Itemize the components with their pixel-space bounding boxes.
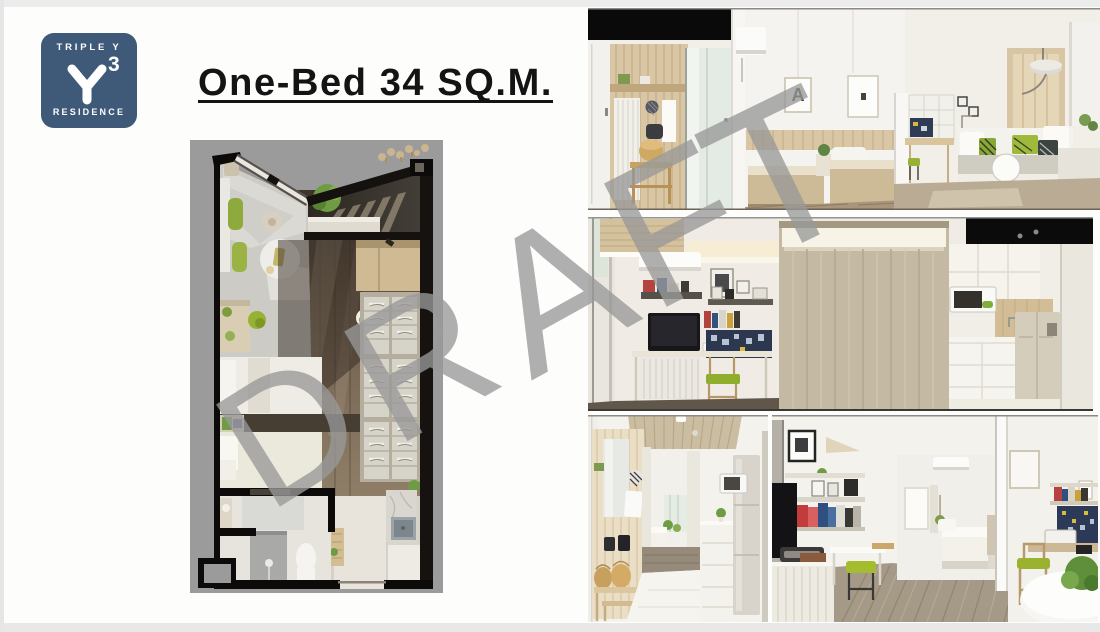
svg-text:A: A [792, 85, 805, 105]
svg-text:3: 3 [108, 53, 120, 76]
